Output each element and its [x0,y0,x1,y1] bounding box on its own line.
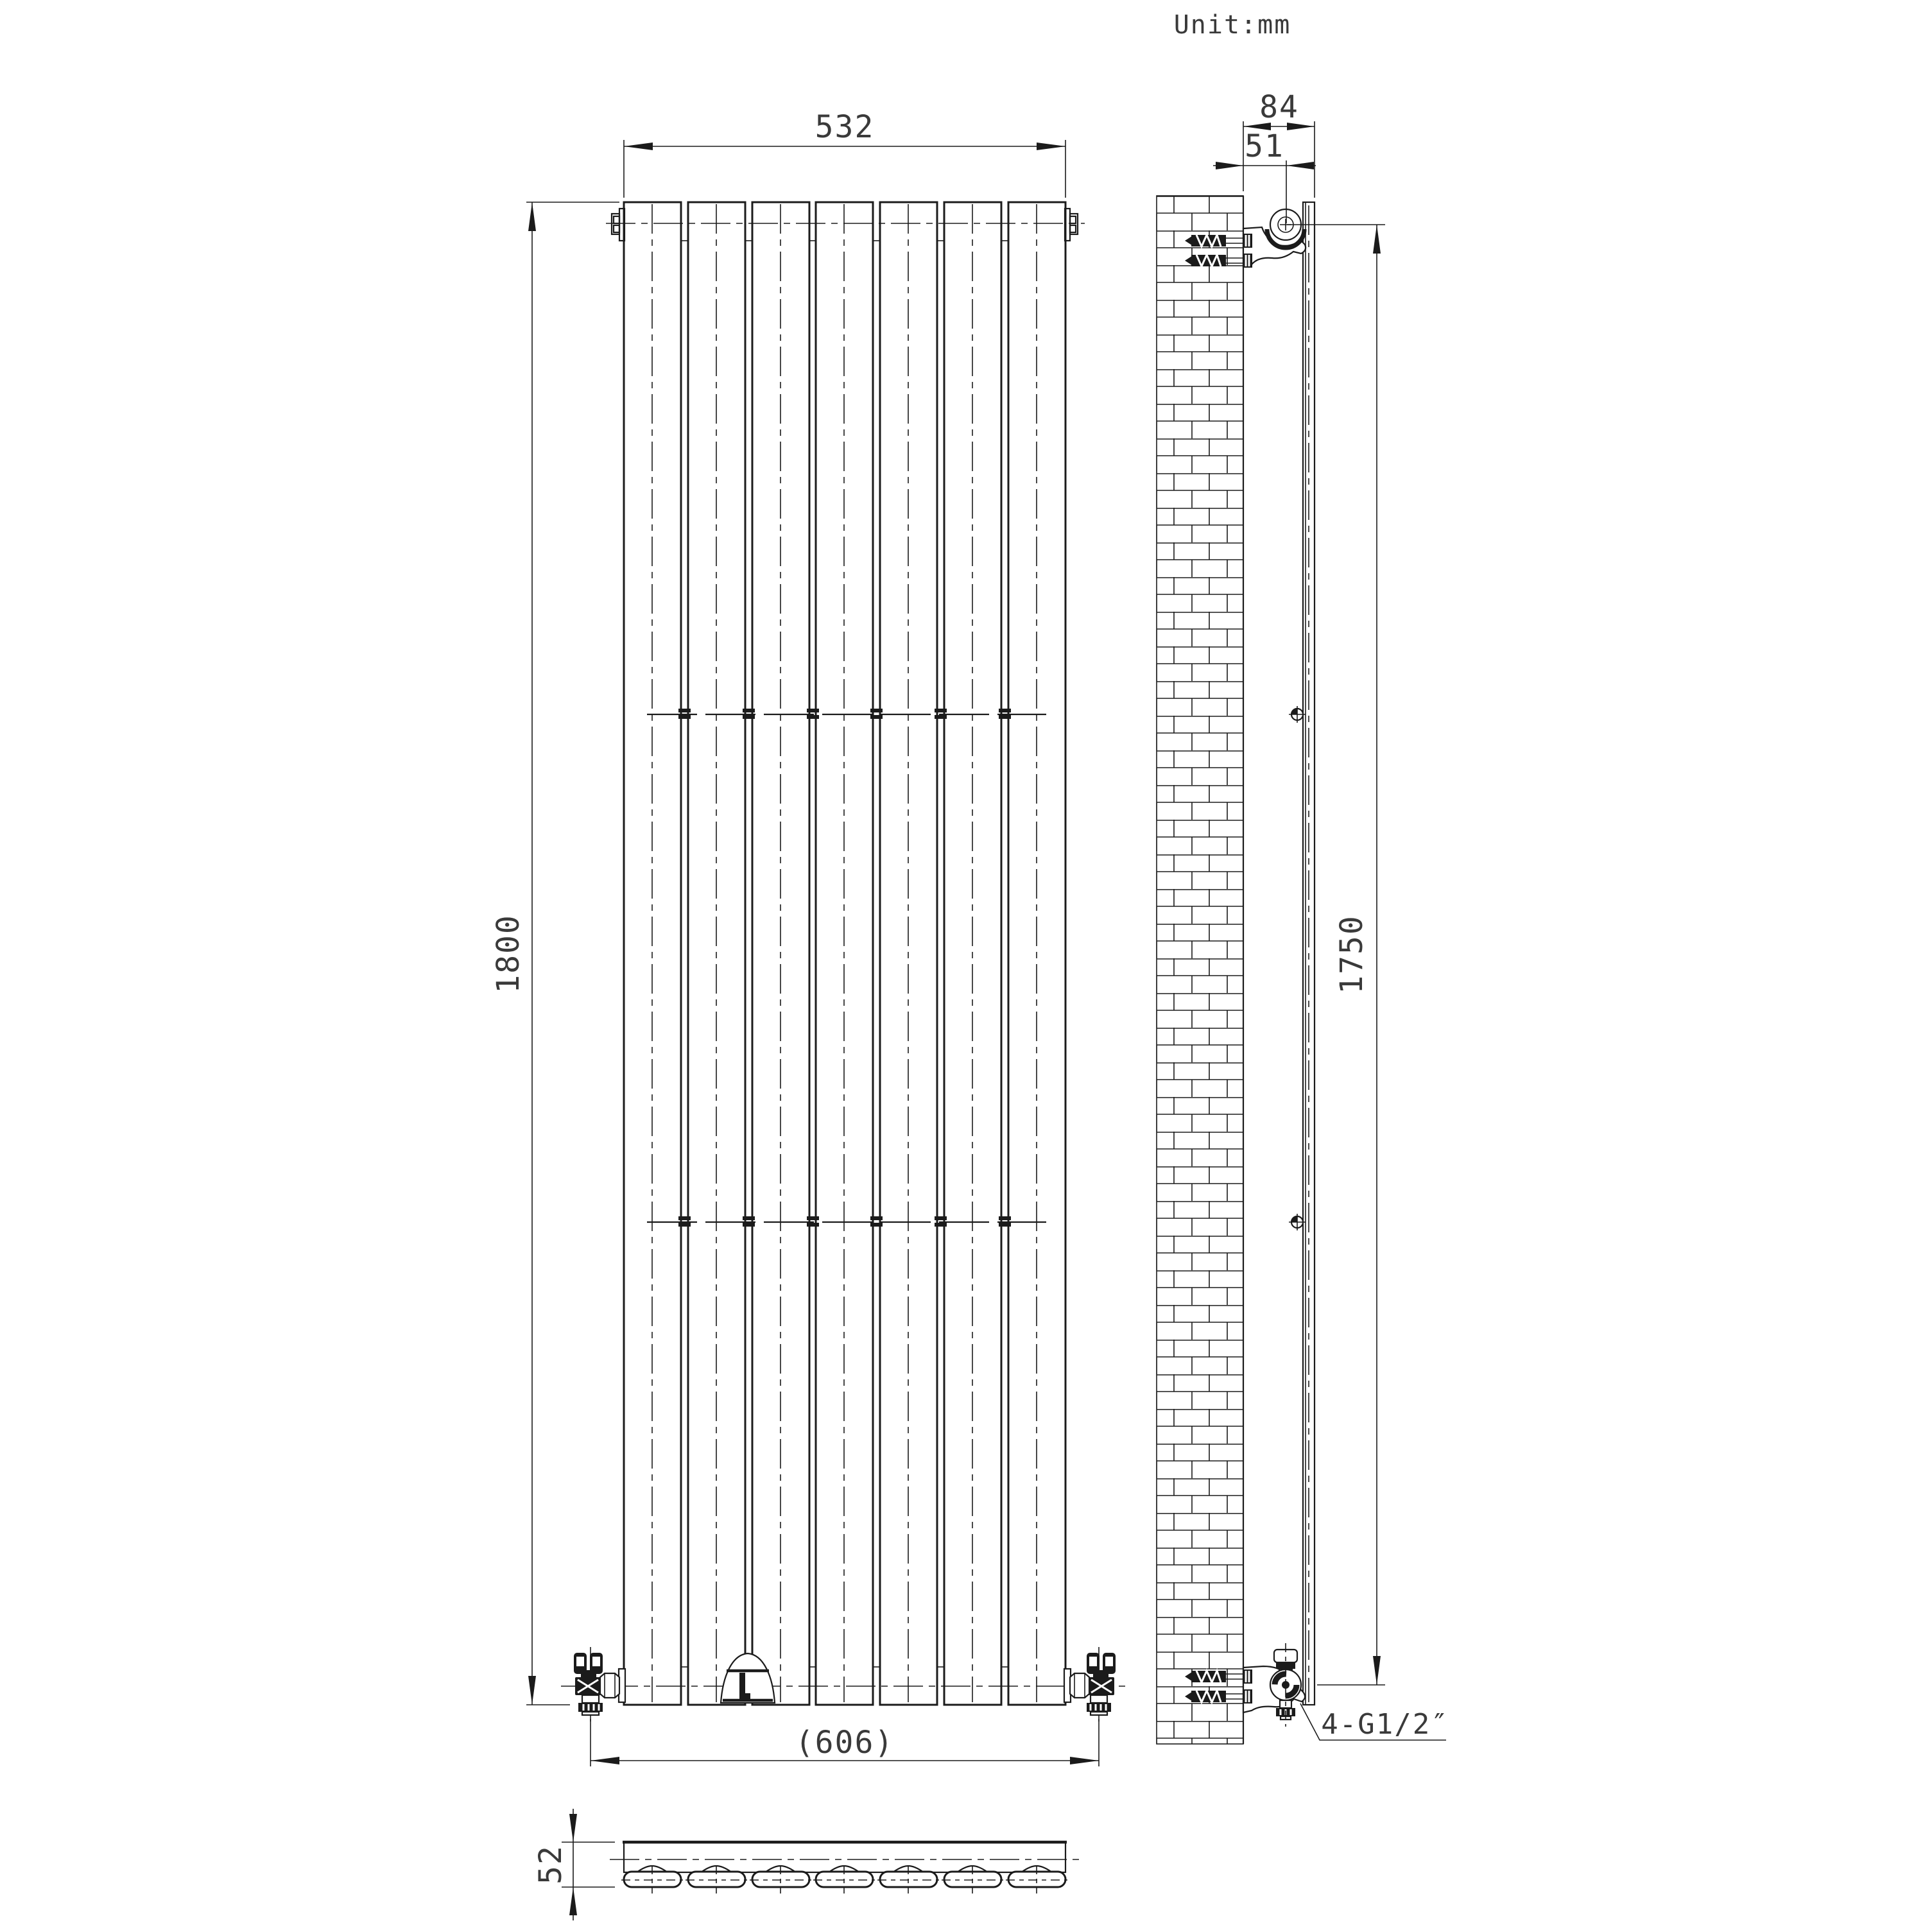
dim-52-label: 52 [533,1845,569,1885]
top-view: 52 [533,1809,1082,1920]
radiator-side-profile [1303,202,1315,1705]
oval-tubes-section [621,1865,1067,1893]
wall-section [1157,196,1243,1744]
panel-junctions [678,241,1011,1667]
dimension-606: (606) [591,1719,1099,1766]
thread-label: 4-G1/2″ [1321,1708,1449,1741]
unit-note: Unit:mm [1174,10,1291,40]
air-vent-left [612,209,625,241]
side-view: 84 51 1750 4-G1/2″ [1157,89,1449,1744]
dim-1800-label: 1800 [490,914,526,994]
dim-51-label: 51 [1245,128,1284,164]
thread-callout: 4-G1/2″ [1300,1703,1449,1741]
radiator-drawing: 532 1800 (606) [0,0,1932,1932]
bottom-support-bracket [721,1653,775,1703]
dim-1750-label: 1750 [1334,915,1370,994]
dim-606-label: (606) [795,1725,895,1761]
front-view: 532 1800 (606) [490,109,1130,1766]
dimension-1800: 1800 [490,202,619,1705]
dimension-1750: 1750 [1287,225,1385,1685]
dimension-532: 532 [624,109,1065,198]
dimension-52: 52 [533,1809,615,1920]
dim-84-label: 84 [1259,89,1299,125]
dim-532-label: 532 [815,109,875,145]
radiator-panels [624,202,1065,1705]
valve-left [574,1647,625,1721]
air-vent-right [1065,209,1078,241]
technical-drawing-canvas: 532 1800 (606) [0,0,1932,1932]
valve-right [1064,1647,1116,1721]
